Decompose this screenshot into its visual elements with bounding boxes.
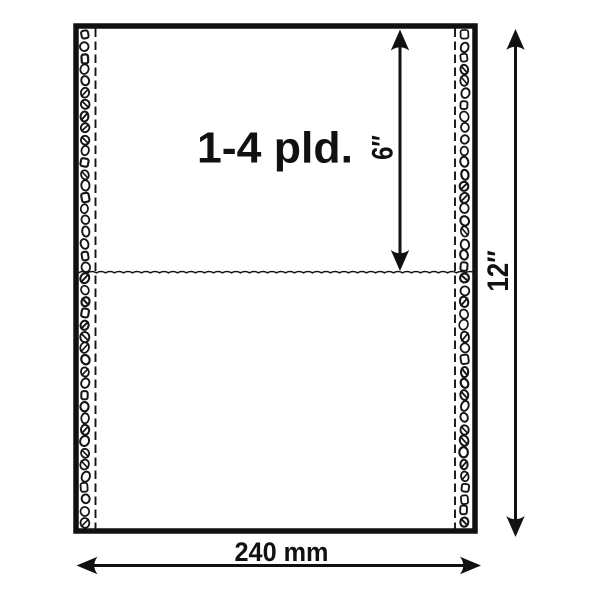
svg-text:12″: 12″ <box>481 250 514 291</box>
svg-text:6″: 6″ <box>365 135 399 160</box>
svg-text:240 mm: 240 mm <box>235 537 329 567</box>
svg-text:1-4 pld.: 1-4 pld. <box>197 124 353 173</box>
